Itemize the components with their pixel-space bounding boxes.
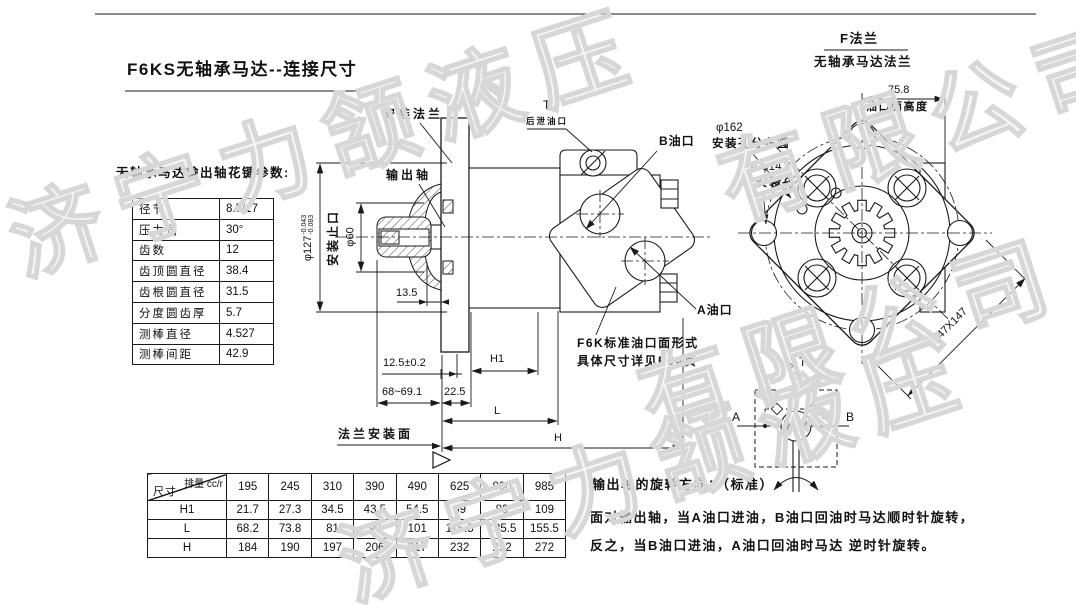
main-section-view: [335, 118, 710, 352]
drawing-page: 济宁力颔液压 有限公司 济宁力颔液压 有限公司 液压有限 .ln{stroke:…: [0, 0, 1076, 605]
port-note-line1: F6K标准油口面形式: [577, 337, 699, 351]
dim-75-8: 75.8: [888, 84, 909, 97]
spigot-label: 安装止口: [327, 210, 341, 266]
table-row: 齿根圆直径31.5: [133, 282, 274, 303]
flange-face-label: 法兰安装面: [338, 428, 413, 442]
dim-13-5: 13.5: [396, 287, 417, 300]
spline-param-table: 径节8.5/17 压力角30° 齿数12 齿顶圆直径38.4 齿根圆直径31.5…: [132, 198, 274, 365]
mount-flange-label: 安装法兰: [383, 108, 443, 122]
dim-l: L: [494, 405, 500, 418]
mount-holes-dim: 4-φ14.3: [751, 161, 791, 174]
corner-top-label: 排量 cc/r: [184, 475, 223, 490]
table-header-row: 排量 cc/r 尺寸 195 245 310 390 490 625 800 9…: [148, 474, 566, 501]
b-port-label: B油口: [659, 135, 695, 149]
flange-view-subtitle: 无轴承马达法兰: [814, 55, 912, 69]
dim-dia60: φ60: [345, 227, 358, 246]
port-face-height-label: 油口面高度: [866, 101, 929, 114]
a-port-label: A油口: [697, 304, 733, 318]
table-row: 测棒间距42.9: [133, 344, 274, 365]
t-port-label: T: [543, 99, 550, 113]
dim-h: H: [554, 432, 562, 445]
rotation-note-line3: 反之，当B油口进油，A油口回油时马达 逆时针旋转。: [590, 539, 936, 554]
table-row: 径节8.5/17: [133, 199, 274, 220]
bolt-circle-sub: 安装孔分布圆: [712, 138, 790, 151]
schematic-t-label: T: [799, 356, 806, 370]
dim-12-5: 12.5±0.2: [383, 357, 426, 370]
dim-22-5: 22.5: [444, 386, 465, 399]
table-row: 齿数12: [133, 240, 274, 261]
page-title: F6KS无轴承马达--连接尺寸: [127, 60, 357, 80]
hydraulic-schematic: [737, 362, 849, 492]
port-note-line2: 具体尺寸详见P94页: [577, 355, 697, 369]
table-row: H1 21.7 27.3 34.5 43.5 54.5 69 89 109: [148, 501, 566, 520]
table-row: 齿顶圆直径38.4: [133, 261, 274, 282]
table-row: 测棒直径4.527: [133, 323, 274, 344]
output-shaft-label: 输出轴: [386, 169, 431, 183]
schematic-b-label: B: [846, 411, 854, 425]
spline-table-caption: 无轴承马达输出轴花键参数:: [116, 166, 290, 180]
dimension-table: 排量 cc/r 尺寸 195 245 310 390 490 625 800 9…: [147, 473, 566, 558]
bolt-circle-dim: φ162: [716, 122, 743, 135]
table-row: L 68.2 73.8 81 90 101 115.5 135.5 155.5: [148, 520, 566, 539]
flange-view-title: F法兰: [840, 32, 878, 47]
table-row: 分度圆齿厚5.7: [133, 302, 274, 323]
t-port-sub-label: 后泄油口: [526, 117, 568, 127]
schematic-a-label: A: [732, 411, 740, 425]
table-row: H 184 190 197 206 217 232 252 272: [148, 539, 566, 558]
rotation-note-line2: 面对输出轴，当A油口进油，B油口回油时马达顺时针旋转，: [590, 511, 974, 526]
mount-holes-sub: 安装孔: [756, 177, 795, 190]
dim-68-69: 68~69.1: [382, 386, 422, 399]
corner-bottom-label: 尺寸: [153, 483, 177, 499]
dim-dia127: φ127-0.043-0.083: [301, 215, 315, 261]
rotation-note-line1: 输出轴的旋转方向：（标准）: [592, 478, 774, 493]
table-row: 压力角30°: [133, 219, 274, 240]
dim-h1: H1: [490, 353, 504, 366]
